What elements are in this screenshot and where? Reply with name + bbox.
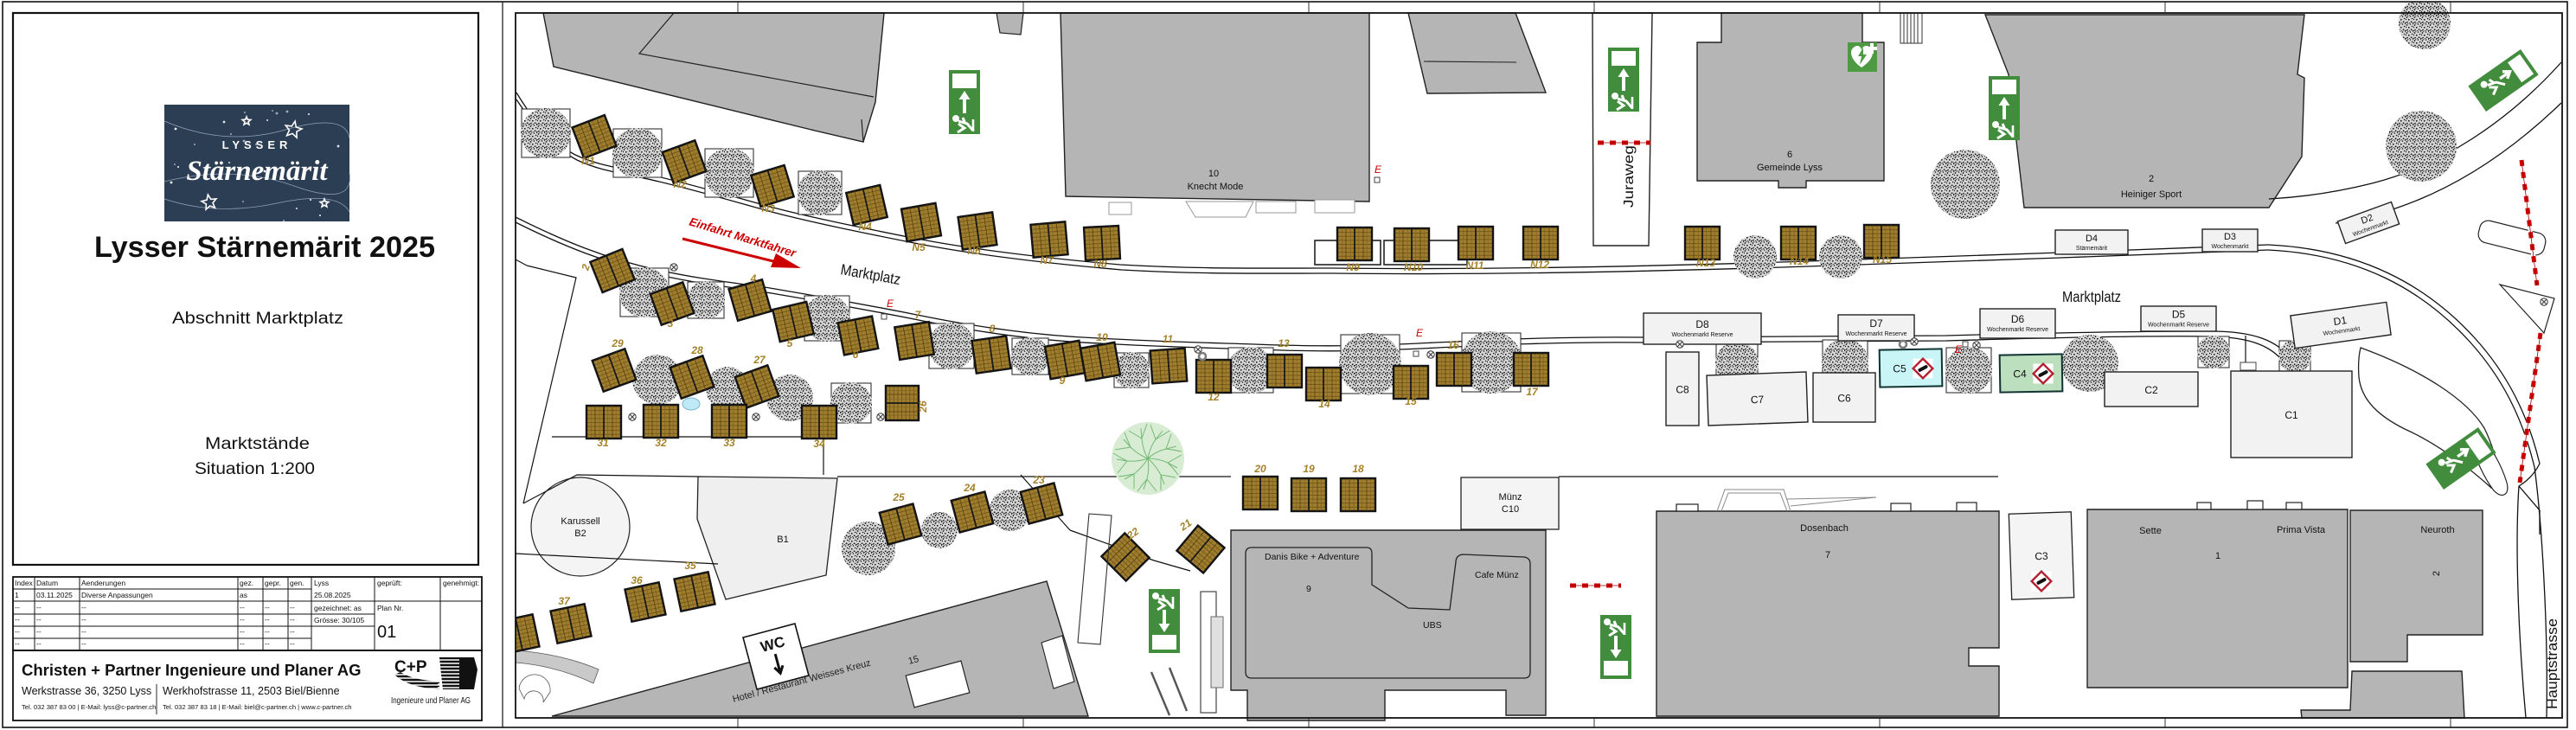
svg-text:Plan Nr.: Plan Nr. [377, 604, 403, 612]
svg-text:--: -- [290, 639, 295, 648]
svg-text:32: 32 [655, 437, 667, 449]
svg-text:N13: N13 [1696, 257, 1715, 269]
svg-text:--: -- [240, 627, 245, 636]
svg-text:N12: N12 [1530, 259, 1549, 271]
svg-text:--: -- [265, 603, 270, 612]
svg-text:Dosenbach: Dosenbach [1800, 523, 1849, 534]
svg-text:--: -- [265, 639, 270, 648]
svg-text:Datum: Datum [36, 579, 58, 587]
svg-text:Grösse: 30/105: Grösse: 30/105 [314, 616, 364, 624]
svg-text:as: as [240, 591, 247, 599]
svg-text:25.08.2025: 25.08.2025 [314, 591, 351, 599]
svg-text:23: 23 [1032, 474, 1045, 486]
svg-text:E: E [1955, 343, 1963, 355]
svg-text:N7: N7 [1040, 254, 1054, 266]
svg-text:LYSSER: LYSSER [222, 138, 292, 151]
svg-text:--: -- [15, 639, 20, 648]
svg-text:8: 8 [990, 323, 996, 335]
svg-text:Christen + Partner Ingenieure: Christen + Partner Ingenieure und Planer… [22, 661, 362, 679]
svg-text:gen.: gen. [290, 579, 304, 587]
svg-text:--: -- [240, 603, 245, 612]
svg-text:--: -- [15, 615, 20, 624]
svg-text:Knecht Mode: Knecht Mode [1188, 182, 1244, 192]
svg-text:03.11.2025: 03.11.2025 [36, 591, 73, 599]
svg-text:N9: N9 [1346, 261, 1360, 273]
svg-text:C1: C1 [2284, 409, 2298, 421]
svg-text:19: 19 [1303, 463, 1315, 475]
svg-text:Danis Bike + Adventure: Danis Bike + Adventure [1265, 552, 1360, 562]
svg-text:--: -- [36, 639, 42, 648]
svg-text:--: -- [81, 615, 87, 624]
svg-text:D6: D6 [2011, 313, 2025, 325]
svg-text:genehmigt:: genehmigt: [443, 579, 479, 587]
svg-text:11: 11 [1163, 333, 1174, 345]
svg-text:Stärnemärit: Stärnemärit [186, 156, 328, 187]
svg-text:18: 18 [1352, 463, 1364, 475]
svg-text:6: 6 [1787, 150, 1792, 160]
svg-text:2: 2 [2149, 174, 2154, 184]
svg-text:Heiniger Sport: Heiniger Sport [2121, 189, 2182, 200]
svg-text:5: 5 [787, 337, 793, 349]
svg-text:35: 35 [684, 560, 696, 572]
svg-text:01: 01 [377, 623, 396, 642]
svg-text:--: -- [240, 639, 245, 648]
svg-text:--: -- [240, 615, 245, 624]
svg-text:N4: N4 [858, 221, 872, 233]
svg-text:33: 33 [723, 437, 735, 449]
svg-text:--: -- [81, 639, 87, 648]
svg-text:27: 27 [753, 354, 766, 366]
svg-text:D4: D4 [2086, 234, 2098, 244]
svg-text:Tel. 032 387 83 18 | E-Mail: b: Tel. 032 387 83 18 | E-Mail: biel@c-part… [163, 703, 351, 711]
svg-text:10: 10 [1208, 169, 1219, 179]
svg-text:Hauptstrasse: Hauptstrasse [2545, 618, 2560, 709]
svg-text:3: 3 [668, 317, 674, 330]
svg-text:Wochenmarkt: Wochenmarkt [2211, 244, 2248, 250]
svg-text:D3: D3 [2224, 232, 2236, 242]
svg-text:25: 25 [892, 491, 905, 503]
svg-text:9: 9 [1306, 584, 1311, 594]
svg-text:N3: N3 [761, 202, 775, 215]
svg-text:N2: N2 [673, 178, 687, 190]
svg-text:Lyss: Lyss [314, 579, 329, 587]
svg-text:--: -- [265, 615, 270, 624]
svg-text:Werkstrasse 36, 3250 Lyss: Werkstrasse 36, 3250 Lyss [22, 685, 151, 697]
svg-text:12: 12 [1208, 391, 1220, 403]
svg-text:13: 13 [1278, 337, 1290, 349]
svg-text:34: 34 [813, 438, 825, 450]
svg-text:C4: C4 [2013, 368, 2027, 380]
svg-text:Neuroth: Neuroth [2420, 525, 2454, 535]
svg-text:20: 20 [1253, 463, 1266, 475]
svg-text:31: 31 [597, 437, 609, 449]
svg-text:Situation 1:200: Situation 1:200 [195, 460, 315, 478]
svg-text:N11: N11 [1465, 259, 1483, 272]
svg-text:--: -- [290, 603, 295, 612]
svg-text:Stärnemärit: Stärnemärit [2076, 246, 2107, 252]
svg-text:Juraweg: Juraweg [1622, 145, 1637, 208]
svg-text:Wochenmarkt Reserve: Wochenmarkt Reserve [1845, 331, 1906, 337]
svg-text:14: 14 [1318, 398, 1330, 410]
svg-text:--: -- [290, 615, 295, 624]
svg-text:--: -- [81, 603, 87, 612]
svg-text:D5: D5 [2172, 309, 2186, 321]
svg-text:N5: N5 [912, 241, 926, 253]
svg-text:2: 2 [2432, 571, 2442, 576]
svg-text:--: -- [81, 627, 87, 636]
svg-text:Werkhofstrasse 11, 2503 Biel/B: Werkhofstrasse 11, 2503 Biel/Bienne [163, 685, 340, 697]
svg-text:gepr.: gepr. [265, 579, 281, 587]
svg-text:Index: Index [15, 579, 34, 587]
svg-text:Münz: Münz [1499, 492, 1522, 503]
svg-text:C10: C10 [1502, 504, 1519, 515]
svg-text:Gemeinde Lyss: Gemeinde Lyss [1757, 163, 1823, 173]
svg-text:gez.: gez. [240, 579, 253, 587]
svg-text:B1: B1 [777, 535, 788, 545]
svg-text:--: -- [290, 627, 295, 636]
svg-text:10: 10 [1096, 331, 1108, 343]
svg-text:Diverse Anpassungen: Diverse Anpassungen [81, 591, 153, 599]
svg-text:29: 29 [611, 337, 624, 349]
svg-text:D7: D7 [1869, 317, 1883, 330]
svg-text:9: 9 [1060, 375, 1066, 387]
svg-text:Prima Vista: Prima Vista [2277, 525, 2326, 535]
svg-text:--: -- [36, 603, 42, 612]
svg-text:--: -- [36, 615, 42, 624]
svg-text:--: -- [36, 627, 42, 636]
svg-text:E: E [1416, 327, 1424, 339]
svg-text:Lysser Stärnemärit 2025: Lysser Stärnemärit 2025 [94, 231, 435, 264]
svg-text:24: 24 [963, 482, 976, 494]
svg-text:7: 7 [1825, 550, 1830, 560]
svg-text:B2: B2 [574, 528, 586, 539]
svg-text:N1: N1 [581, 155, 595, 167]
svg-text:36: 36 [631, 574, 643, 586]
svg-text:D8: D8 [1695, 318, 1709, 330]
svg-text:Sette: Sette [2139, 526, 2162, 536]
svg-text:17: 17 [1526, 386, 1539, 398]
svg-text:Wochenmarkt Reserve: Wochenmarkt Reserve [2148, 323, 2209, 329]
svg-text:28: 28 [690, 344, 703, 356]
svg-text:Karussell: Karussell [561, 516, 599, 527]
svg-text:Wochenmarkt Reserve: Wochenmarkt Reserve [1671, 332, 1733, 338]
svg-text:C2: C2 [2144, 384, 2158, 396]
svg-text:E: E [887, 298, 894, 310]
svg-text:gezeichnet: as: gezeichnet: as [314, 604, 362, 612]
svg-text:E: E [1375, 163, 1382, 176]
svg-text:N15: N15 [1873, 253, 1892, 266]
svg-text:Aenderungen: Aenderungen [81, 579, 125, 587]
svg-text:Marktstände: Marktstände [205, 435, 310, 453]
svg-text:D1: D1 [2333, 314, 2348, 328]
svg-text:Marktplatz: Marktplatz [2062, 288, 2121, 305]
svg-text:N8: N8 [1093, 258, 1107, 270]
svg-text:--: -- [265, 627, 270, 636]
svg-text:N10: N10 [1404, 261, 1423, 273]
svg-text:26: 26 [917, 400, 929, 413]
svg-text:C5: C5 [1893, 362, 1906, 375]
svg-text:6: 6 [853, 349, 859, 361]
svg-text:Tel. 032 387 83 00 | E-Mail: l: Tel. 032 387 83 00 | E-Mail: lyss@c-part… [22, 703, 156, 711]
svg-text:--: -- [15, 627, 20, 636]
svg-text:C6: C6 [1837, 393, 1851, 405]
svg-text:37: 37 [558, 595, 571, 607]
svg-text:N6: N6 [967, 245, 981, 257]
svg-text:N14: N14 [1790, 255, 1809, 267]
svg-text:Ingenieure und Planer AG: Ingenieure und Planer AG [391, 695, 471, 706]
svg-text:1: 1 [2215, 551, 2220, 561]
svg-text:1: 1 [15, 591, 19, 599]
svg-text:15: 15 [1405, 395, 1417, 407]
svg-text:Wochenmarkt Reserve: Wochenmarkt Reserve [1987, 327, 2048, 333]
svg-text:C8: C8 [1676, 384, 1689, 396]
svg-text:--: -- [15, 603, 20, 612]
svg-text:UBS: UBS [1423, 620, 1442, 631]
svg-text:16: 16 [1447, 339, 1459, 351]
svg-text:C3: C3 [2035, 550, 2048, 563]
svg-text:Abschnitt Marktplatz: Abschnitt Marktplatz [172, 310, 343, 328]
svg-text:4: 4 [750, 272, 757, 285]
svg-text:C7: C7 [1751, 394, 1765, 407]
svg-text:geprüft:: geprüft: [377, 579, 402, 587]
svg-text:Cafe Münz: Cafe Münz [1475, 570, 1519, 580]
